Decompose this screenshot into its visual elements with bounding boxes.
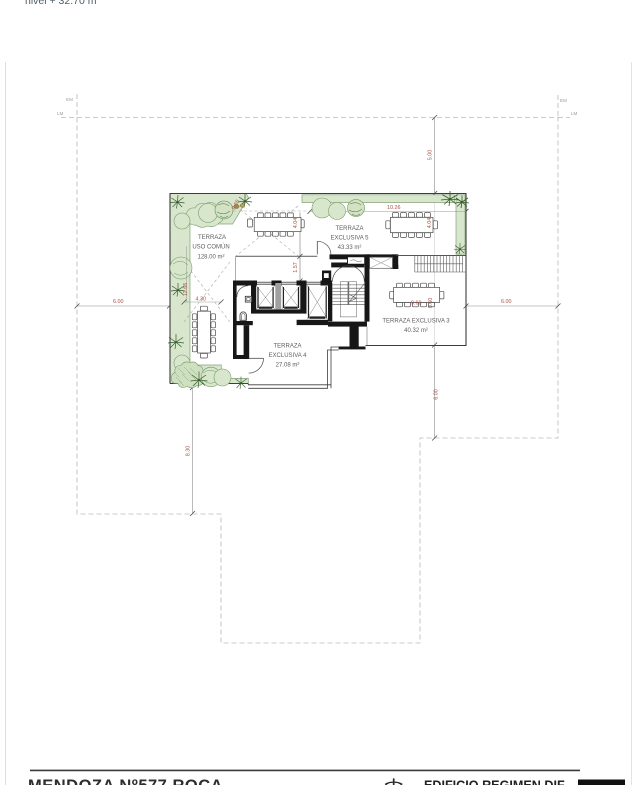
svg-text:4.30: 4.30 xyxy=(196,297,207,303)
svg-text:USO COMÚN: USO COMÚN xyxy=(192,244,229,251)
svg-text:6.00: 6.00 xyxy=(113,299,124,305)
svg-text:1.57: 1.57 xyxy=(293,262,299,273)
svg-text:4.04: 4.04 xyxy=(427,218,433,229)
svg-text:EM: EM xyxy=(66,97,73,102)
svg-text:MENDOZA Nº577 ROCA: MENDOZA Nº577 ROCA xyxy=(28,777,223,785)
svg-text:6.00: 6.00 xyxy=(501,299,512,305)
svg-text:EDIFICIO REGIMEN DIF: EDIFICIO REGIMEN DIF xyxy=(424,779,565,785)
svg-text:43.33 m²: 43.33 m² xyxy=(338,245,362,251)
svg-text:6.00: 6.00 xyxy=(434,389,440,400)
svg-text:LM: LM xyxy=(57,111,64,116)
svg-text:9.60: 9.60 xyxy=(411,300,422,306)
svg-text:10.26: 10.26 xyxy=(387,205,401,211)
svg-text:EXCLUSIVA 4: EXCLUSIVA 4 xyxy=(269,353,308,359)
svg-text:40.32 m²: 40.32 m² xyxy=(404,328,428,334)
svg-text:nivel + 32.70 m: nivel + 32.70 m xyxy=(25,0,97,7)
svg-text:TERRAZA: TERRAZA xyxy=(273,344,301,350)
svg-text:LM: LM xyxy=(571,111,578,116)
svg-text:TERRAZA: TERRAZA xyxy=(335,226,363,232)
svg-text:8.30: 8.30 xyxy=(186,446,192,457)
svg-text:128.00 m²: 128.00 m² xyxy=(197,254,224,260)
svg-text:EXCLUSIVA 5: EXCLUSIVA 5 xyxy=(331,236,370,242)
svg-text:TERRAZA: TERRAZA xyxy=(198,235,226,241)
svg-text:4.04: 4.04 xyxy=(293,218,299,229)
svg-text:TERRAZA EXCLUSIVA 3: TERRAZA EXCLUSIVA 3 xyxy=(382,319,450,325)
svg-text:5.00: 5.00 xyxy=(427,150,433,161)
svg-text:12.66: 12.66 xyxy=(183,283,189,297)
svg-text:EM: EM xyxy=(560,98,567,103)
svg-text:0.60: 0.60 xyxy=(428,298,434,309)
svg-text:27.08 m²: 27.08 m² xyxy=(276,363,300,369)
